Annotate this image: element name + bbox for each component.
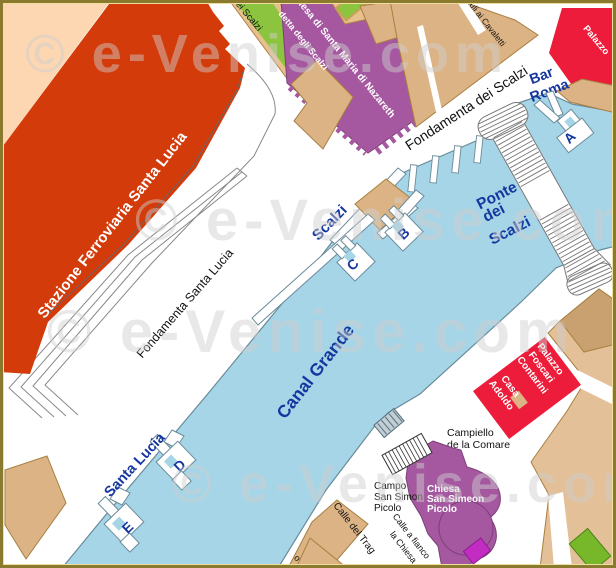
svg-text:© e-Venise.com: © e-Venise.com: [135, 188, 616, 253]
svg-text:© e-Venise.com: © e-Venise.com: [47, 298, 575, 365]
svg-text:© e-Venise.com: © e-Venise.com: [172, 454, 616, 514]
svg-text:© e-Venise.com: © e-Venise.com: [25, 24, 509, 84]
svg-text:Campiello: Campiello: [447, 427, 494, 439]
